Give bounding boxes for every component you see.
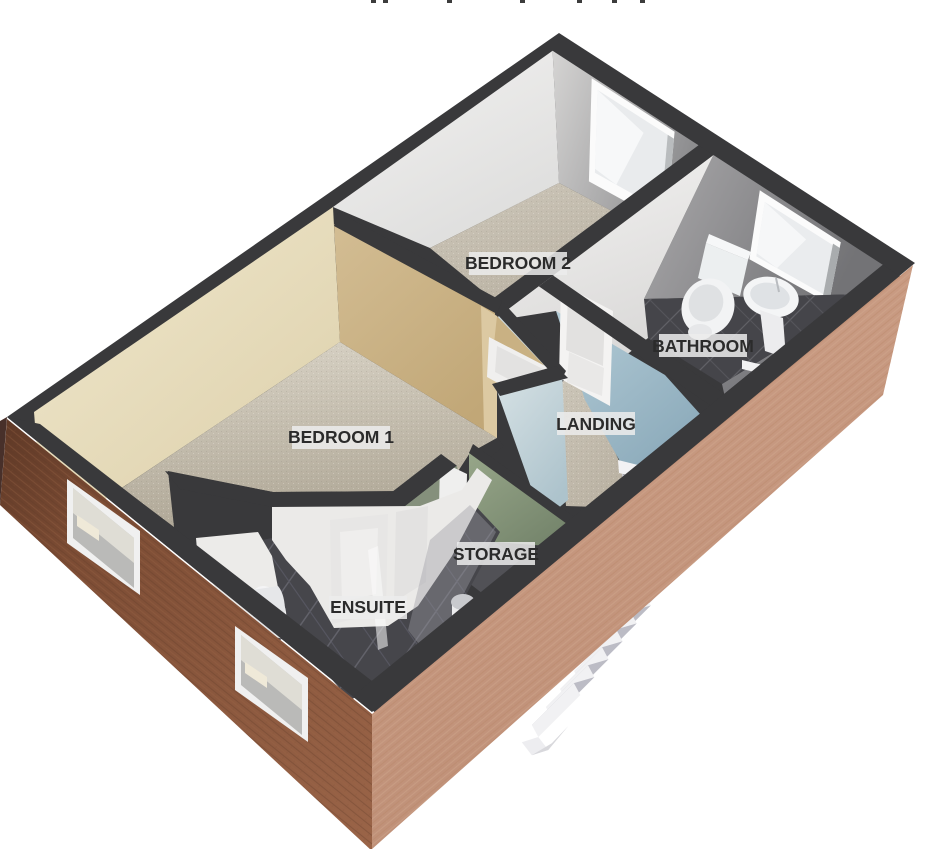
svg-text:STORAGE: STORAGE — [453, 544, 539, 564]
svg-text:BEDROOM 1: BEDROOM 1 — [288, 427, 394, 447]
svg-text:BATHROOM: BATHROOM — [652, 336, 754, 356]
svg-text:BEDROOM 2: BEDROOM 2 — [465, 253, 571, 273]
svg-text:LANDING: LANDING — [556, 414, 636, 434]
svg-text:ENSUITE: ENSUITE — [330, 597, 406, 617]
